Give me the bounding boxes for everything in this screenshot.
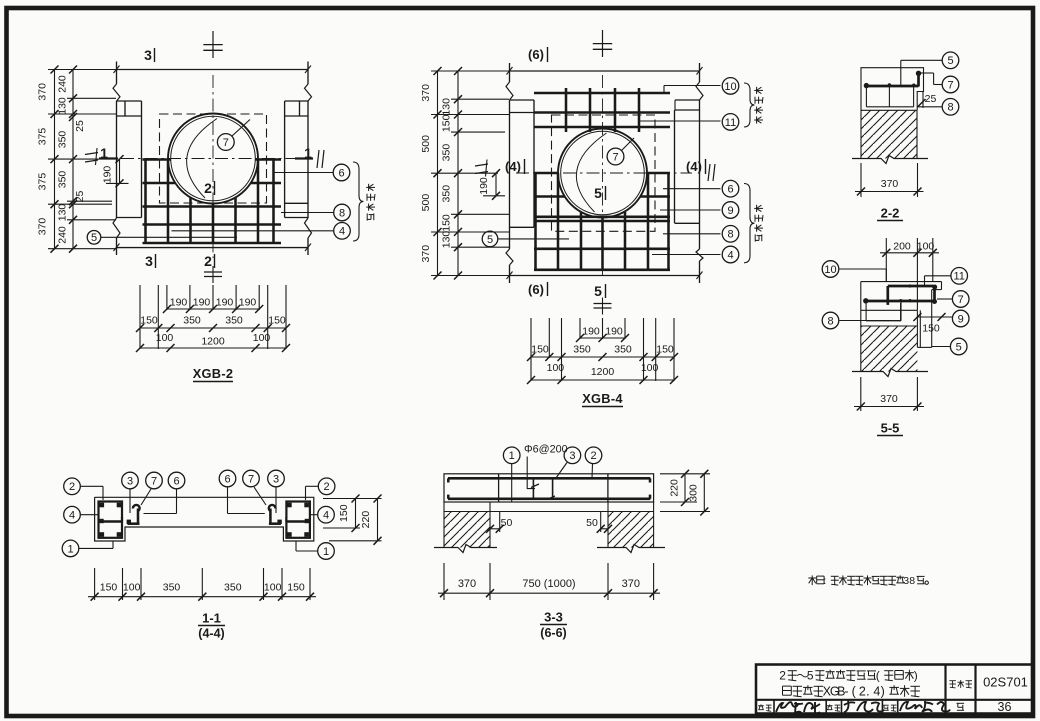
svg-text:25: 25 — [74, 120, 86, 132]
svg-text:4: 4 — [69, 510, 75, 522]
svg-text:150: 150 — [441, 114, 453, 132]
svg-text:2: 2 — [69, 481, 75, 493]
svg-text:11: 11 — [953, 271, 964, 283]
svg-text:370: 370 — [420, 245, 432, 263]
svg-text:190: 190 — [216, 297, 234, 309]
svg-text:150: 150 — [531, 344, 549, 356]
svg-text:2: 2 — [204, 253, 212, 269]
svg-text:300: 300 — [688, 484, 700, 502]
svg-text:5: 5 — [594, 185, 602, 201]
svg-text:02S701: 02S701 — [983, 675, 1028, 690]
svg-text:150: 150 — [140, 315, 158, 327]
svg-text:150: 150 — [268, 315, 286, 327]
svg-text:4: 4 — [873, 685, 880, 699]
svg-text:130: 130 — [441, 231, 453, 249]
svg-text:7: 7 — [947, 79, 953, 91]
svg-text:1200: 1200 — [591, 366, 615, 378]
svg-text:350: 350 — [163, 582, 181, 594]
svg-text:190: 190 — [170, 297, 188, 309]
svg-text:6: 6 — [173, 475, 179, 487]
svg-text:(6-6): (6-6) — [540, 626, 566, 640]
svg-text::: : — [823, 575, 826, 587]
svg-text:): ) — [914, 669, 918, 683]
svg-text:2: 2 — [204, 180, 212, 196]
svg-text:190: 190 — [239, 297, 257, 309]
svg-text:): ) — [881, 685, 885, 699]
svg-text:150: 150 — [100, 582, 118, 594]
svg-text:50: 50 — [501, 517, 513, 529]
svg-text:8: 8 — [909, 575, 915, 587]
svg-text:100: 100 — [123, 582, 141, 594]
svg-text:25: 25 — [74, 191, 86, 203]
svg-text:5: 5 — [947, 55, 953, 67]
svg-text:(: ( — [876, 669, 880, 683]
svg-text:4: 4 — [339, 226, 345, 238]
svg-text:10: 10 — [824, 264, 836, 276]
svg-text:370: 370 — [458, 578, 476, 590]
svg-text:7: 7 — [223, 137, 229, 149]
svg-text:8: 8 — [947, 102, 953, 114]
svg-text:5: 5 — [807, 669, 814, 683]
svg-text:130: 130 — [441, 98, 453, 116]
svg-text:-: - — [844, 685, 848, 699]
svg-text:5: 5 — [956, 341, 962, 353]
svg-text:(4-4): (4-4) — [198, 627, 224, 641]
svg-text:350: 350 — [57, 131, 69, 149]
svg-text:10: 10 — [724, 81, 736, 93]
svg-text:2-2: 2-2 — [881, 206, 900, 221]
svg-text:200: 200 — [893, 241, 911, 253]
svg-text:XGB-4: XGB-4 — [582, 391, 623, 406]
svg-text:370: 370 — [420, 84, 432, 102]
svg-text:130: 130 — [57, 204, 69, 222]
svg-text:130: 130 — [57, 97, 69, 115]
svg-text:150: 150 — [922, 323, 940, 335]
svg-text:375: 375 — [37, 128, 49, 146]
svg-text:150: 150 — [338, 504, 350, 522]
svg-text:.: . — [866, 685, 869, 699]
svg-text:100: 100 — [156, 332, 174, 344]
svg-text:9: 9 — [727, 205, 733, 217]
svg-text:1: 1 — [67, 543, 73, 555]
svg-text:1: 1 — [323, 546, 329, 558]
svg-text:350: 350 — [441, 185, 453, 203]
svg-text:36: 36 — [998, 700, 1012, 714]
svg-text:220: 220 — [360, 511, 372, 529]
svg-text:100: 100 — [547, 362, 565, 374]
svg-text:350: 350 — [614, 344, 632, 356]
svg-text:Φ6@200: Φ6@200 — [524, 444, 568, 456]
svg-text:2: 2 — [859, 685, 866, 699]
svg-text:370: 370 — [881, 178, 899, 190]
svg-text:240: 240 — [57, 75, 69, 93]
svg-text:7: 7 — [248, 473, 254, 485]
svg-text:150: 150 — [441, 214, 453, 232]
svg-text:370: 370 — [37, 83, 49, 101]
svg-text:350: 350 — [225, 315, 243, 327]
svg-text:XGB-2: XGB-2 — [193, 366, 234, 381]
svg-text:1-1: 1-1 — [202, 611, 221, 626]
svg-text:150: 150 — [656, 344, 674, 356]
svg-text:100: 100 — [641, 362, 659, 374]
svg-text:190: 190 — [478, 177, 490, 195]
svg-text:350: 350 — [57, 171, 69, 189]
svg-text:100: 100 — [917, 241, 935, 253]
svg-text:4: 4 — [727, 249, 733, 261]
svg-text:220: 220 — [669, 479, 681, 497]
svg-text:3-3: 3-3 — [544, 610, 563, 625]
svg-text:8: 8 — [827, 315, 833, 327]
svg-text:350: 350 — [224, 582, 242, 594]
svg-text:190: 190 — [193, 297, 211, 309]
svg-text:3: 3 — [569, 450, 575, 462]
svg-text:(4): (4) — [686, 159, 702, 174]
svg-text:3: 3 — [903, 575, 909, 587]
svg-text:100: 100 — [253, 332, 271, 344]
svg-text:4: 4 — [323, 510, 329, 522]
svg-text:7: 7 — [612, 151, 618, 163]
svg-text:(6): (6) — [528, 282, 544, 297]
svg-text:2: 2 — [590, 450, 596, 462]
svg-text:190: 190 — [605, 326, 623, 338]
svg-text:5: 5 — [594, 283, 602, 299]
svg-text:375: 375 — [37, 173, 49, 191]
svg-text:190: 190 — [582, 326, 600, 338]
svg-text:25: 25 — [925, 93, 937, 105]
svg-text:3: 3 — [273, 473, 279, 485]
svg-text:370: 370 — [37, 218, 49, 236]
svg-text:5: 5 — [91, 232, 97, 244]
svg-text:7: 7 — [958, 294, 964, 306]
svg-text:2: 2 — [324, 481, 330, 493]
svg-text:100: 100 — [264, 582, 282, 594]
svg-text:2: 2 — [779, 669, 786, 683]
svg-text:5-5: 5-5 — [881, 421, 900, 436]
svg-text:3: 3 — [145, 253, 153, 269]
svg-text:3: 3 — [127, 475, 133, 487]
svg-text:6: 6 — [338, 167, 344, 179]
svg-text:11: 11 — [725, 117, 736, 129]
svg-text:350: 350 — [183, 315, 201, 327]
svg-text:370: 370 — [622, 578, 640, 590]
svg-text:8: 8 — [727, 229, 733, 241]
svg-text:(6): (6) — [528, 47, 544, 62]
svg-text:6: 6 — [727, 184, 733, 196]
svg-text:50: 50 — [586, 517, 598, 529]
svg-text:9: 9 — [958, 313, 964, 325]
svg-text:370: 370 — [880, 393, 898, 405]
svg-text:1: 1 — [509, 450, 515, 462]
svg-text:(4): (4) — [505, 159, 521, 174]
svg-text:750 (1000): 750 (1000) — [522, 578, 575, 590]
svg-text:500: 500 — [420, 194, 432, 212]
svg-text:7: 7 — [151, 475, 157, 487]
svg-text:150: 150 — [287, 582, 305, 594]
svg-text:350: 350 — [441, 144, 453, 162]
svg-text:8: 8 — [339, 207, 345, 219]
svg-text:190: 190 — [102, 166, 114, 184]
svg-text:1200: 1200 — [201, 336, 225, 348]
svg-text:6: 6 — [224, 473, 230, 485]
svg-text:3: 3 — [144, 47, 152, 63]
svg-text:5: 5 — [487, 234, 493, 246]
svg-text:240: 240 — [57, 226, 69, 244]
svg-text:500: 500 — [420, 135, 432, 153]
svg-text:350: 350 — [573, 344, 591, 356]
